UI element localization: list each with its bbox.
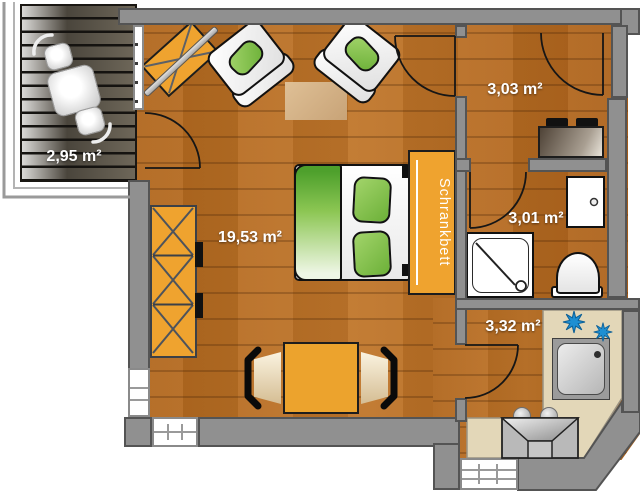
burner-star-icon: [563, 311, 612, 341]
vanity-basin: [502, 408, 578, 459]
balcony-chair-arcs: [34, 35, 110, 142]
balcony-area-label: 2,95 m²: [28, 148, 120, 166]
living-room-door: [395, 36, 455, 96]
floor-plan: 2,95 m²: [0, 0, 640, 494]
balcony-railing: [4, 2, 130, 197]
living-room-area-label: 19,53 m²: [200, 229, 300, 247]
detail-overlay: [0, 0, 640, 494]
dining-chair-backrests: [248, 350, 394, 406]
shower-details: [476, 243, 526, 291]
balcony-door: [145, 113, 200, 168]
kitchen-door: [465, 345, 518, 398]
washbasin-tap: [591, 199, 598, 206]
hallway-area-label: 3,03 m²: [470, 81, 560, 99]
bathroom-area-label: 3,01 m²: [491, 210, 581, 228]
kitchen-area-label: 3,32 m²: [468, 318, 558, 336]
